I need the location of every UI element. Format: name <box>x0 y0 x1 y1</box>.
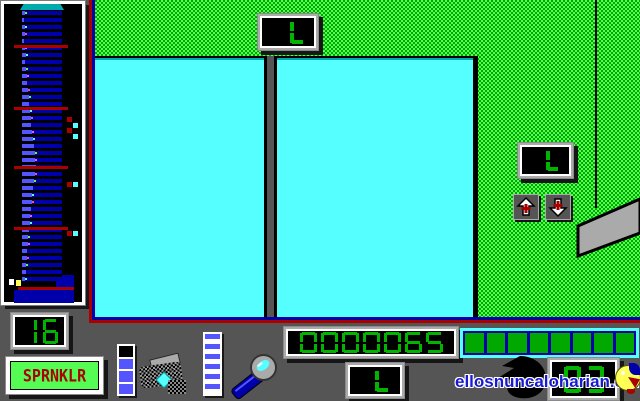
sprinkler-label-face: SPRNKLR <box>10 361 99 390</box>
ladder-stripe <box>205 389 220 394</box>
tower-floor-dot <box>33 138 35 140</box>
tower-indicator-dot <box>73 123 78 128</box>
water-gauge-segment <box>508 333 527 353</box>
tower-floor-dot <box>35 173 37 175</box>
seven-segment-digit <box>321 332 338 353</box>
tower-floor-dot <box>25 26 27 28</box>
water-gauge-segment <box>465 333 484 353</box>
tower-floor <box>22 186 62 190</box>
water-gauge-cells <box>463 331 636 355</box>
tower-floor-fill <box>22 200 32 204</box>
water-gauge-segment <box>551 333 570 353</box>
tower-floor <box>22 158 62 162</box>
seven-segment-digit <box>300 332 317 353</box>
tower-indicator-dot <box>67 231 72 236</box>
tower-floor-dot <box>31 117 33 119</box>
tower-floor-fill <box>22 221 30 225</box>
tower-floor-fill <box>22 18 24 22</box>
tower-floor <box>22 74 62 78</box>
tower-floor-dot <box>27 75 29 77</box>
tower-floor-dot <box>32 194 34 196</box>
floor-indicator-top <box>257 13 319 51</box>
tower-floor-fill <box>22 60 25 64</box>
tower-indicator-dot <box>67 182 72 187</box>
tower-base-step2 <box>62 275 74 280</box>
tower-floor-dot <box>28 236 30 238</box>
floor-indicator-bottom-value <box>375 370 390 392</box>
tower-floor <box>22 200 62 204</box>
tower-floor <box>22 179 62 183</box>
tower-floor-fill <box>22 179 34 183</box>
tower-floor-fill <box>22 186 33 190</box>
tower-alarm-line <box>14 166 68 169</box>
seven-segment-digit <box>375 370 390 392</box>
tower-indicator-dot <box>73 182 78 187</box>
tower-floor <box>22 221 62 225</box>
tower-floor-dot <box>26 264 28 266</box>
water-gauge-segment <box>594 333 613 353</box>
tower-floor <box>22 39 62 43</box>
floor-indicator-bottom <box>345 362 405 399</box>
sprinkler-tool-base <box>168 380 186 394</box>
tower-floor-fill <box>22 270 26 274</box>
tower-indicator-dot <box>67 117 72 122</box>
ladder-gauge <box>203 332 222 396</box>
tower-floor-dot <box>30 110 32 112</box>
sprinkler-tool-icon <box>138 352 192 398</box>
tower-floor <box>22 249 62 253</box>
supply-gauge-cell <box>119 384 133 395</box>
floor-indicator-top-value <box>290 21 305 44</box>
tower-floor <box>22 214 62 218</box>
tower-floor <box>22 172 62 176</box>
play-area-border-blue-bottom <box>92 317 640 320</box>
tower-floor-fill <box>22 144 34 148</box>
tower-floor-fill <box>22 123 31 127</box>
score-value <box>300 332 443 353</box>
floor-indicator-right-value <box>546 150 560 171</box>
tower-floor-dot <box>28 89 30 91</box>
supply-gauge-cell <box>119 346 133 357</box>
counter-value <box>22 319 58 344</box>
tower-floor <box>22 130 62 134</box>
up-arrow-icon <box>515 196 537 218</box>
tower-floor-fill <box>22 102 29 106</box>
window-mullion-center <box>267 56 274 317</box>
counter-display <box>10 312 69 350</box>
floor-indicator-right <box>517 142 574 179</box>
tower-floor-fill <box>22 151 35 155</box>
tower-marker-white <box>9 279 14 285</box>
tower-floor <box>22 207 62 211</box>
tower-floor-fill <box>22 116 31 120</box>
seven-segment-digit <box>290 21 305 44</box>
tower-alarm-line <box>14 45 68 48</box>
tower-floor <box>22 81 62 85</box>
tower-floor-dot <box>34 180 36 182</box>
sprinkler-label: SPRNKLR <box>23 365 86 386</box>
tower-floor-dot <box>26 54 28 56</box>
tower-floor <box>22 144 62 148</box>
tower-floor <box>22 256 62 260</box>
tower-floor-fill <box>22 207 31 211</box>
magnifier-head <box>250 354 277 381</box>
supply-gauge-cell <box>119 359 133 370</box>
seven-segment-digit <box>426 332 443 353</box>
tower-floor <box>22 67 62 71</box>
tower-indicator-dot <box>67 128 72 133</box>
tower-indicator-dot <box>73 134 78 139</box>
tower-floor-dot <box>32 201 34 203</box>
building-overview-panel <box>1 1 85 305</box>
tower-floor <box>22 193 62 197</box>
tower-floor-fill <box>22 249 27 253</box>
seven-segment-digit <box>43 319 58 344</box>
tower-roof <box>20 4 64 10</box>
tower-floor-dot <box>25 33 27 35</box>
tower-alarm-line <box>14 107 68 110</box>
game-screen: { "title": "SPRNKLR game screen", "color… <box>0 0 640 400</box>
tower-floor-dot <box>25 278 27 280</box>
tower-floor-dot <box>30 215 32 217</box>
tower-floor-fill <box>22 130 32 134</box>
tower-floor-dot <box>29 96 31 98</box>
seven-segment-digit <box>405 332 422 353</box>
down-arrow-icon <box>547 196 569 218</box>
tower-marker-yellow <box>16 280 21 286</box>
tower-floor-fill <box>22 95 29 99</box>
lift-down-button[interactable] <box>545 194 571 220</box>
tower-floor <box>22 242 62 246</box>
tower-floor <box>22 95 62 99</box>
tower-floor <box>22 116 62 120</box>
tower-base <box>14 290 74 303</box>
lift-up-button[interactable] <box>513 194 539 220</box>
tower-floor <box>22 88 62 92</box>
tower-floor <box>22 151 62 155</box>
tower-floor-fill <box>22 193 32 197</box>
tower-floor <box>22 270 62 274</box>
seven-segment-digit <box>384 332 401 353</box>
tower-floor <box>22 123 62 127</box>
tower-alarm-line <box>14 227 68 230</box>
watermark-pacman-icon <box>615 363 640 395</box>
window-pane-left[interactable] <box>95 60 264 317</box>
seven-segment-digit <box>363 332 380 353</box>
tower-floor-fill <box>22 158 35 162</box>
tower-floor-dot <box>28 243 30 245</box>
tower-floor-dot <box>35 152 37 154</box>
tower-floor-fill <box>22 81 27 85</box>
tower-floor-dot <box>26 68 28 70</box>
tower-floor <box>22 60 62 64</box>
tower-floor <box>22 18 62 22</box>
tower-floor-fill <box>22 214 30 218</box>
building-edge-line <box>595 0 597 208</box>
tower-floor <box>22 235 62 239</box>
tower-floor-dot <box>25 12 27 14</box>
tower-floor <box>22 25 62 29</box>
tower-floor <box>22 102 62 106</box>
tower-floor-dot <box>30 222 32 224</box>
water-gauge-segment <box>487 333 506 353</box>
tower-floor <box>22 263 62 267</box>
watermark-text: ellosnuncaloharian.com <box>455 372 640 392</box>
tower-floor-fill <box>22 39 24 43</box>
tower-floor <box>22 11 62 15</box>
tower-floor-fill <box>22 137 33 141</box>
window-pane-right[interactable] <box>277 60 473 317</box>
tower-base-step <box>56 280 74 287</box>
tower-indicator-dot <box>73 231 78 236</box>
seven-segment-digit <box>546 150 560 171</box>
tower-floor <box>22 137 62 141</box>
water-gauge-segment <box>530 333 549 353</box>
ledge-ramp <box>570 190 640 265</box>
seven-segment-digit <box>22 319 37 344</box>
window-mullion <box>264 56 277 317</box>
tower-floor <box>22 32 62 36</box>
play-area-border-red-bottom <box>89 320 640 323</box>
tower-floor-dot <box>32 131 34 133</box>
tower-floor-fill <box>22 172 35 176</box>
score-display <box>283 326 459 359</box>
supply-gauge-cell <box>119 371 133 382</box>
supply-gauge <box>117 344 135 396</box>
tower-floor-dot <box>35 159 37 161</box>
water-gauge-segment <box>616 333 635 353</box>
tower-floor-dot <box>27 257 29 259</box>
magnifier-icon <box>228 352 276 400</box>
sprinkler-label-box: SPRNKLR <box>5 356 104 395</box>
seven-segment-digit <box>342 332 359 353</box>
water-gauge-segment <box>573 333 592 353</box>
window-frame-right <box>473 56 478 317</box>
tower-floor <box>22 53 62 57</box>
